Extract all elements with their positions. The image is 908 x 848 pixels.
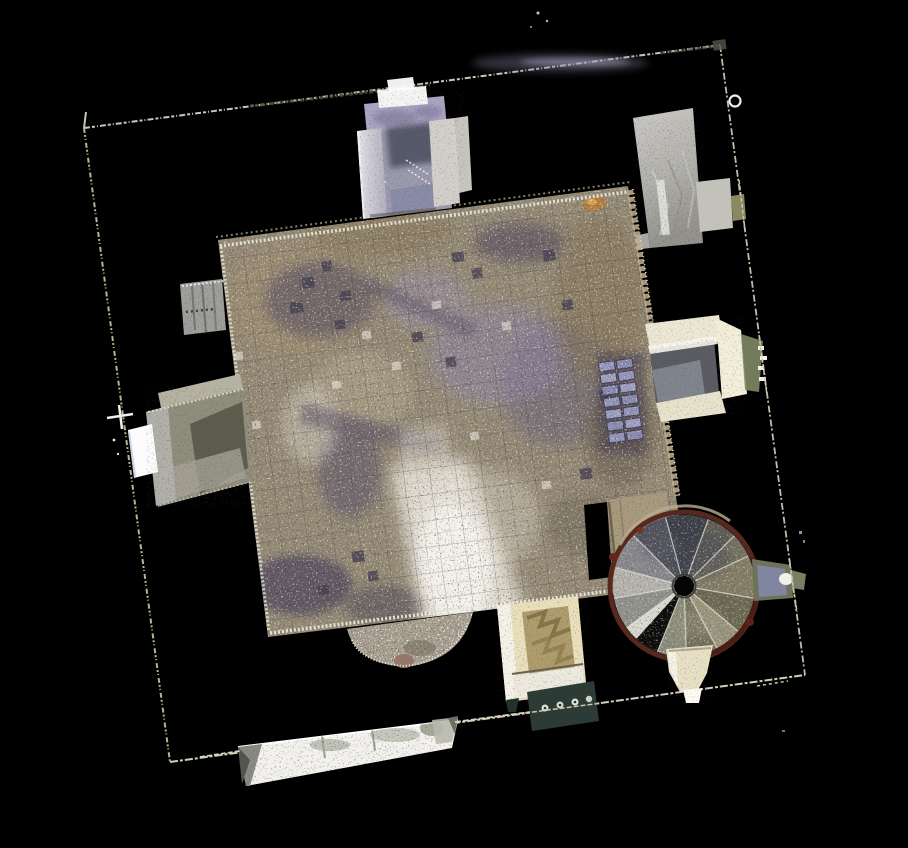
stray-point xyxy=(799,531,802,534)
stray-point xyxy=(803,540,805,543)
stray-point xyxy=(113,439,116,442)
wall-patch-noise xyxy=(180,280,226,335)
rim-blotch xyxy=(609,553,617,561)
stray-point xyxy=(537,12,540,15)
rim-blotch xyxy=(746,618,754,626)
alcove-noise xyxy=(146,388,252,506)
north-entrance-porch xyxy=(357,77,472,219)
stair-newel-hole xyxy=(674,576,694,596)
railing-knob xyxy=(586,696,592,702)
scan-canvas[interactable] xyxy=(0,0,908,848)
railing-knob-center xyxy=(574,701,577,704)
railing-knob-center xyxy=(559,704,562,707)
stair-south-funnel xyxy=(666,645,714,705)
point-cloud-viewport[interactable] xyxy=(0,0,908,848)
railing-knob-center xyxy=(544,707,547,710)
stair-window-white-blob xyxy=(779,573,793,585)
west-wall-patch xyxy=(180,279,226,335)
tooth xyxy=(760,356,767,360)
stray-point xyxy=(530,26,532,28)
funnel-noise xyxy=(666,645,714,705)
stray-point xyxy=(117,453,119,455)
boundary-corner-blob xyxy=(712,39,726,51)
slab-noise xyxy=(633,118,703,248)
south-chapel-alcove xyxy=(497,596,602,731)
slab-side-tab xyxy=(696,178,733,232)
stray-point xyxy=(782,730,785,732)
alcove-noise xyxy=(645,318,745,418)
apse-shading xyxy=(404,640,436,656)
rim-blotch xyxy=(637,527,643,533)
stray-point xyxy=(546,20,548,22)
porch-noise xyxy=(360,90,465,215)
boundary-haze-core xyxy=(520,58,630,66)
